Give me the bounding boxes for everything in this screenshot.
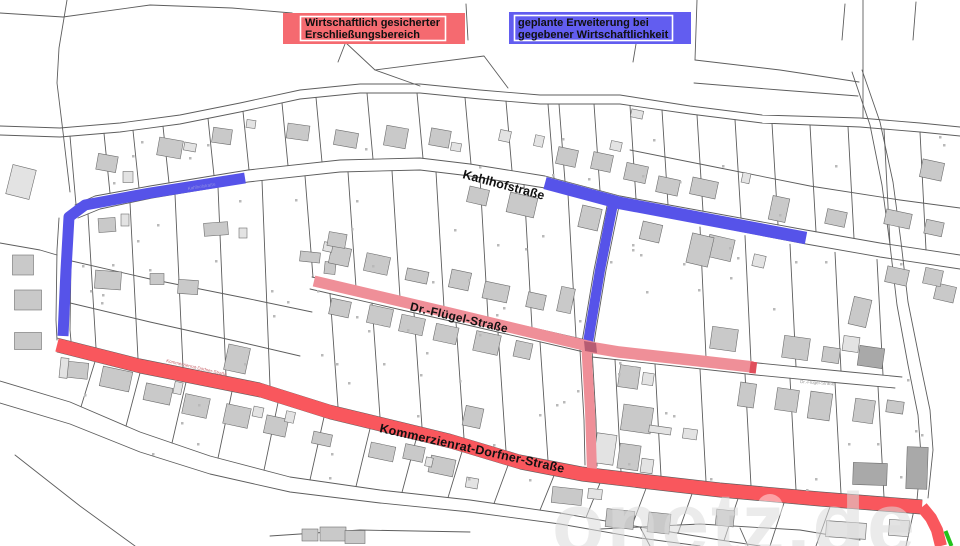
svg-text:Wirtschaftlich gesicherter: Wirtschaftlich gesicherter (305, 17, 441, 29)
svg-text:onetz.de: onetz.de (552, 476, 917, 546)
svg-text:gegebener Wirtschaftlichkeit: gegebener Wirtschaftlichkeit (518, 29, 669, 41)
svg-text:Erschließungsbereich: Erschließungsbereich (305, 29, 420, 41)
svg-text:geplante Erweiterung bei: geplante Erweiterung bei (518, 17, 649, 29)
